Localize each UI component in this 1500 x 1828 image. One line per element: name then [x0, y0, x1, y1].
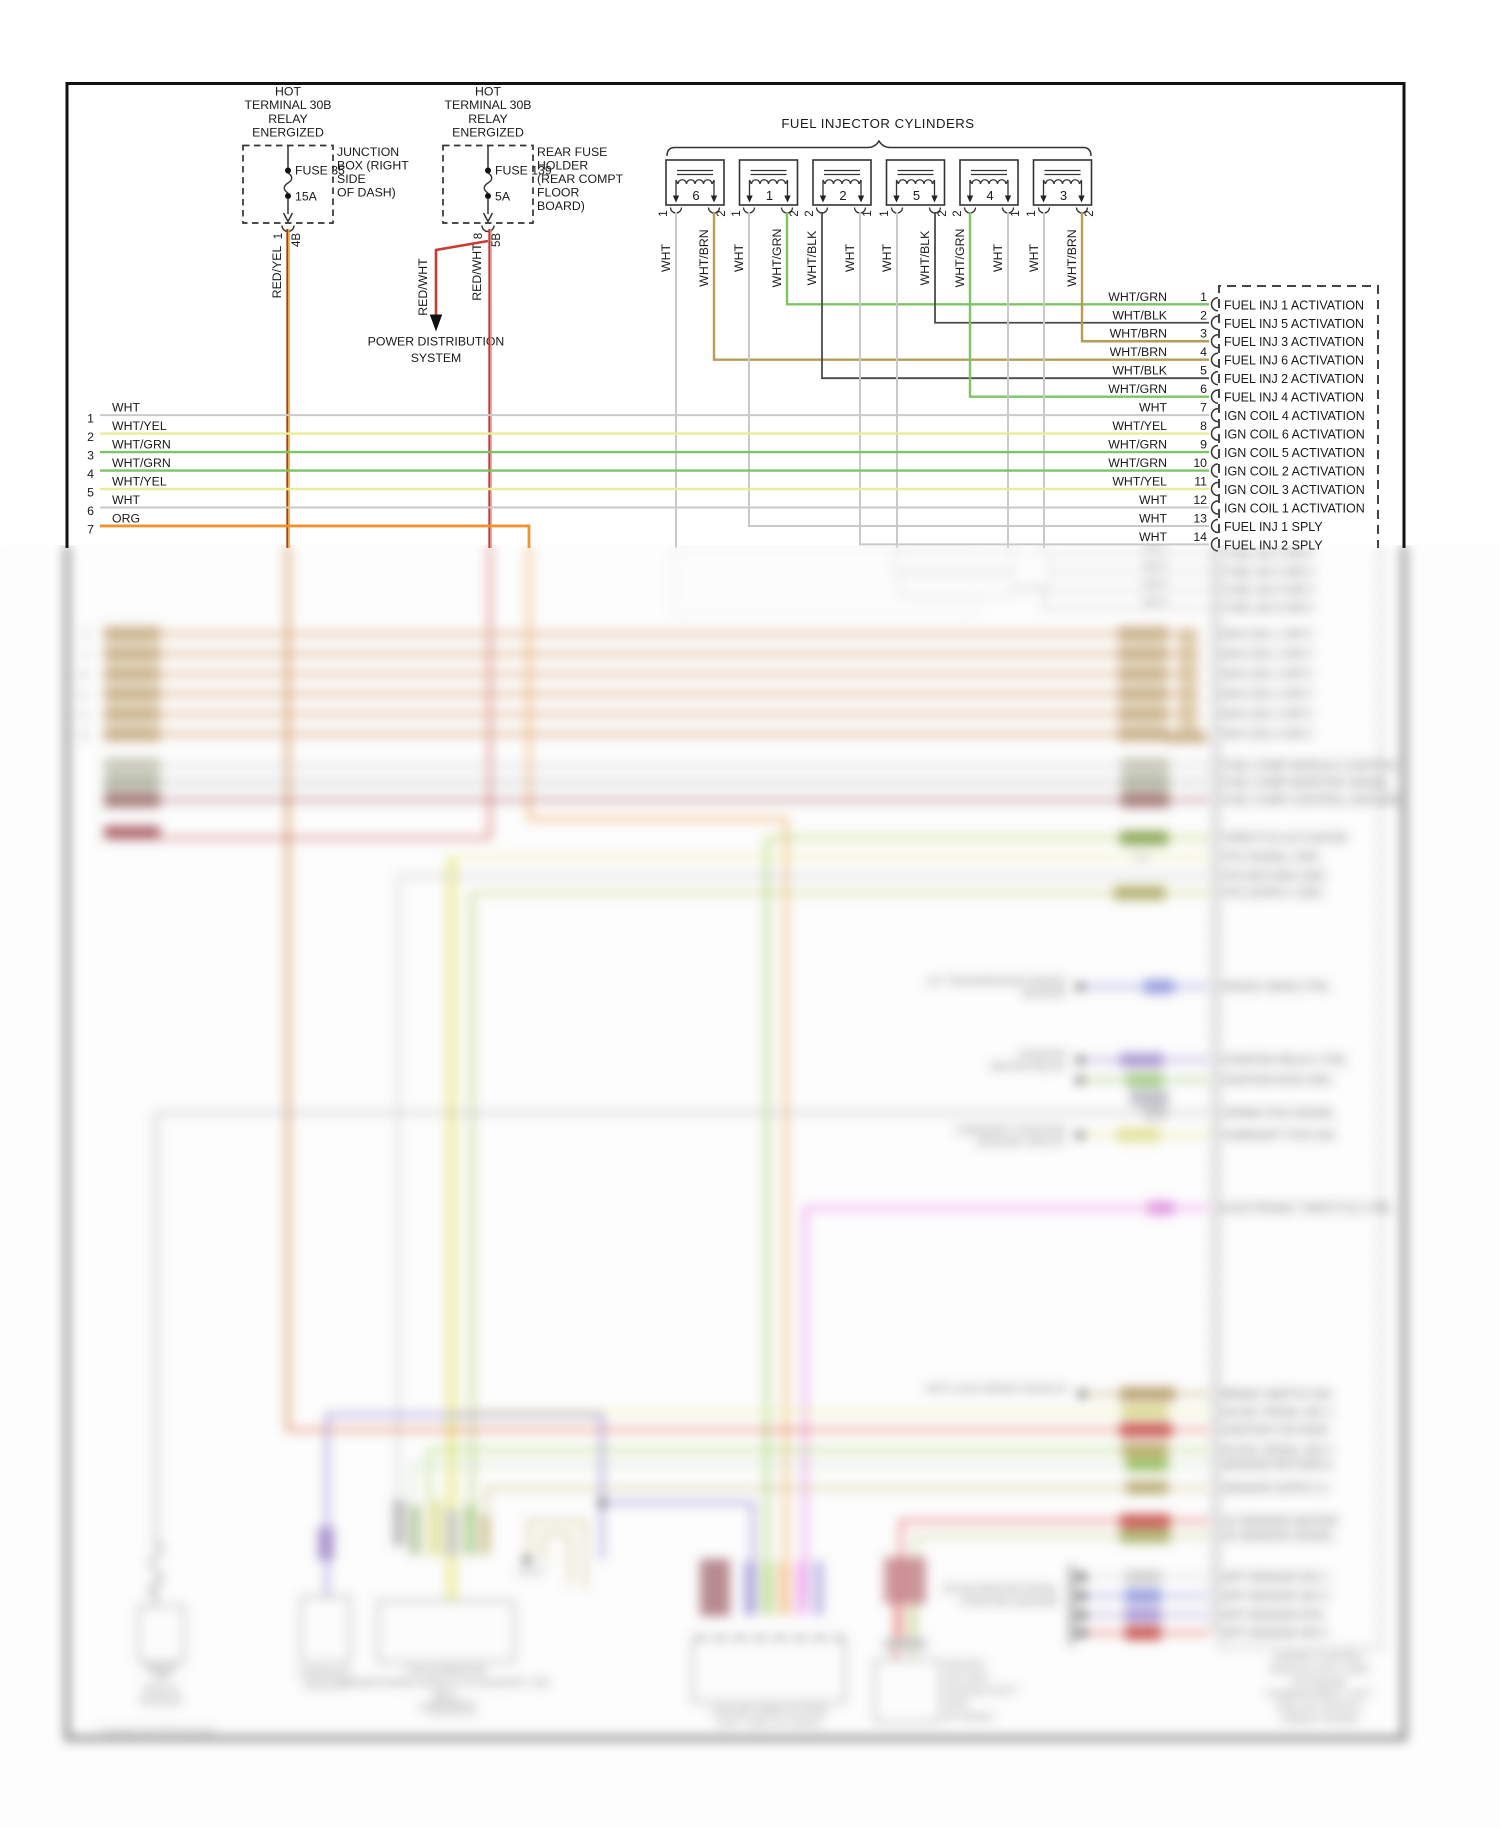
svg-text:2: 2 — [839, 188, 846, 203]
svg-text:RED/YEL: RED/YEL — [270, 246, 284, 299]
svg-text:RED/WHT: RED/WHT — [470, 243, 484, 301]
svg-text:WHT/GRN: WHT/GRN — [953, 229, 967, 288]
svg-text:FUEL INJ 5 ACTIVATION: FUEL INJ 5 ACTIVATION — [1224, 317, 1364, 331]
svg-text:4B: 4B — [291, 233, 303, 247]
svg-text:ENERGIZED: ENERGIZED — [452, 126, 524, 140]
svg-text:5: 5 — [913, 188, 920, 203]
svg-text:WHT: WHT — [991, 244, 1005, 272]
svg-text:6: 6 — [1200, 382, 1207, 396]
svg-text:WHT/BRN: WHT/BRN — [1110, 327, 1167, 341]
svg-text:2: 2 — [1200, 308, 1207, 322]
svg-text:7: 7 — [87, 522, 94, 536]
svg-text:WHT/BRN: WHT/BRN — [697, 229, 711, 286]
svg-text:5B: 5B — [491, 233, 503, 247]
svg-text:WHT: WHT — [1139, 401, 1167, 415]
svg-text:2: 2 — [1084, 210, 1096, 216]
svg-text:1: 1 — [862, 210, 874, 216]
svg-text:IGN COIL 2 ACTIVATION: IGN COIL 2 ACTIVATION — [1224, 465, 1365, 479]
svg-text:ENERGIZED: ENERGIZED — [252, 126, 324, 140]
svg-text:WHT/YEL: WHT/YEL — [112, 419, 167, 433]
svg-text:REAR FUSE: REAR FUSE — [537, 145, 607, 159]
svg-text:13: 13 — [1193, 511, 1207, 525]
svg-text:WHT/YEL: WHT/YEL — [112, 475, 167, 489]
svg-text:WHT: WHT — [843, 244, 857, 272]
svg-text:2: 2 — [789, 210, 801, 216]
svg-text:JUNCTION: JUNCTION — [337, 145, 399, 159]
svg-text:WHT/GRN: WHT/GRN — [770, 229, 784, 288]
svg-text:3: 3 — [87, 449, 94, 463]
svg-text:WHT: WHT — [1139, 530, 1167, 544]
svg-text:IGN COIL 6 ACTIVATION: IGN COIL 6 ACTIVATION — [1224, 428, 1365, 442]
svg-text:FLOOR: FLOOR — [537, 186, 579, 200]
svg-text:1: 1 — [87, 412, 94, 426]
svg-text:(REAR COMPT: (REAR COMPT — [537, 172, 624, 186]
svg-text:FUEL INJ 4 ACTIVATION: FUEL INJ 4 ACTIVATION — [1224, 391, 1364, 405]
svg-text:SYSTEM: SYSTEM — [411, 351, 462, 365]
svg-text:HOT: HOT — [475, 85, 501, 99]
svg-text:3: 3 — [1200, 327, 1207, 341]
svg-text:WHT/GRN: WHT/GRN — [112, 438, 171, 452]
svg-text:FUEL INJ 1 ACTIVATION: FUEL INJ 1 ACTIVATION — [1224, 298, 1364, 312]
svg-text:FUEL INJ 6 ACTIVATION: FUEL INJ 6 ACTIVATION — [1224, 354, 1364, 368]
svg-text:ORG: ORG — [112, 511, 140, 525]
svg-text:WHT/GRN: WHT/GRN — [1108, 382, 1167, 396]
svg-text:HOLDER: HOLDER — [537, 159, 588, 173]
svg-text:4: 4 — [1200, 345, 1207, 359]
svg-text:6: 6 — [87, 504, 94, 518]
svg-text:WHT/BLK: WHT/BLK — [1112, 308, 1167, 322]
svg-text:SIDE: SIDE — [337, 172, 366, 186]
svg-text:WHT: WHT — [1139, 511, 1167, 525]
svg-text:1: 1 — [658, 210, 670, 216]
svg-text:POWER DISTRIBUTION: POWER DISTRIBUTION — [368, 335, 505, 349]
svg-text:12: 12 — [1193, 493, 1207, 507]
svg-text:WHT/BRN: WHT/BRN — [1110, 345, 1167, 359]
svg-text:2: 2 — [87, 430, 94, 444]
svg-text:IGN COIL 5 ACTIVATION: IGN COIL 5 ACTIVATION — [1224, 446, 1365, 460]
svg-text:4: 4 — [87, 467, 94, 481]
svg-text:OF DASH): OF DASH) — [337, 186, 396, 200]
svg-text:Copyright 2014 Mitchell Repair: Copyright 2014 Mitchell Repair — [100, 1725, 216, 1735]
svg-text:1: 1 — [1200, 290, 1207, 304]
svg-text:2: 2 — [952, 210, 964, 216]
svg-text:WHT: WHT — [659, 244, 673, 272]
svg-text:RED/WHT: RED/WHT — [416, 258, 430, 316]
svg-text:1: 1 — [1010, 210, 1022, 216]
svg-text:5: 5 — [1200, 364, 1207, 378]
svg-text:1: 1 — [273, 233, 285, 239]
svg-text:5A: 5A — [495, 190, 511, 204]
svg-text:3: 3 — [1060, 188, 1067, 203]
svg-text:10: 10 — [1193, 456, 1207, 470]
svg-text:RELAY: RELAY — [268, 112, 307, 126]
svg-text:14: 14 — [1193, 530, 1207, 544]
svg-text:BOX (RIGHT: BOX (RIGHT — [337, 159, 409, 173]
svg-text:FUEL INJ 3 ACTIVATION: FUEL INJ 3 ACTIVATION — [1224, 335, 1364, 349]
svg-text:WHT/YEL: WHT/YEL — [1112, 475, 1167, 489]
svg-text:6: 6 — [692, 188, 699, 203]
svg-text:WHT/YEL: WHT/YEL — [1112, 419, 1167, 433]
svg-text:7: 7 — [1200, 401, 1207, 415]
svg-text:WHT: WHT — [732, 244, 746, 272]
svg-text:TERMINAL 30B: TERMINAL 30B — [244, 98, 331, 112]
svg-text:1: 1 — [731, 210, 743, 216]
svg-text:FUEL INJ 2 ACTIVATION: FUEL INJ 2 ACTIVATION — [1224, 372, 1364, 386]
svg-text:WHT: WHT — [112, 401, 140, 415]
svg-text:WHT/BLK: WHT/BLK — [918, 230, 932, 285]
svg-text:1: 1 — [1026, 210, 1038, 216]
svg-text:WHT/GRN: WHT/GRN — [1108, 456, 1167, 470]
svg-text:HOT: HOT — [275, 85, 301, 99]
svg-text:4: 4 — [986, 188, 993, 203]
svg-text:IGN COIL 1 ACTIVATION: IGN COIL 1 ACTIVATION — [1224, 501, 1365, 515]
svg-text:BOARD): BOARD) — [537, 199, 585, 213]
svg-text:15A: 15A — [295, 190, 318, 204]
svg-text:8: 8 — [1200, 419, 1207, 433]
svg-text:8: 8 — [473, 233, 485, 239]
svg-text:RELAY: RELAY — [468, 112, 507, 126]
svg-text:WHT/GRN: WHT/GRN — [1108, 290, 1167, 304]
svg-text:IGN COIL 4 ACTIVATION: IGN COIL 4 ACTIVATION — [1224, 409, 1365, 423]
svg-text:IGN COIL 3 ACTIVATION: IGN COIL 3 ACTIVATION — [1224, 483, 1365, 497]
svg-text:WHT/GRN: WHT/GRN — [1108, 438, 1167, 452]
svg-text:WHT/BLK: WHT/BLK — [1112, 364, 1167, 378]
svg-text:WHT: WHT — [1027, 244, 1041, 272]
svg-text:2: 2 — [937, 210, 949, 216]
svg-text:WHT: WHT — [880, 244, 894, 272]
svg-text:WHT: WHT — [112, 493, 140, 507]
svg-text:WHT/GRN: WHT/GRN — [112, 456, 171, 470]
svg-text:9: 9 — [1200, 438, 1207, 452]
svg-text:FUEL INJECTOR CYLINDERS: FUEL INJECTOR CYLINDERS — [781, 116, 974, 131]
svg-text:WHT: WHT — [1139, 493, 1167, 507]
svg-text:1: 1 — [766, 188, 773, 203]
svg-text:TERMINAL 30B: TERMINAL 30B — [444, 98, 531, 112]
svg-text:11: 11 — [1194, 475, 1207, 489]
svg-text:WHT/BLK: WHT/BLK — [805, 230, 819, 285]
svg-text:1: 1 — [879, 210, 891, 216]
svg-text:2: 2 — [716, 210, 728, 216]
svg-text:5: 5 — [87, 486, 94, 500]
svg-text:2: 2 — [804, 210, 816, 216]
svg-text:FUEL INJ 1 SPLY: FUEL INJ 1 SPLY — [1224, 520, 1323, 534]
svg-text:WHT/BRN: WHT/BRN — [1065, 229, 1079, 286]
